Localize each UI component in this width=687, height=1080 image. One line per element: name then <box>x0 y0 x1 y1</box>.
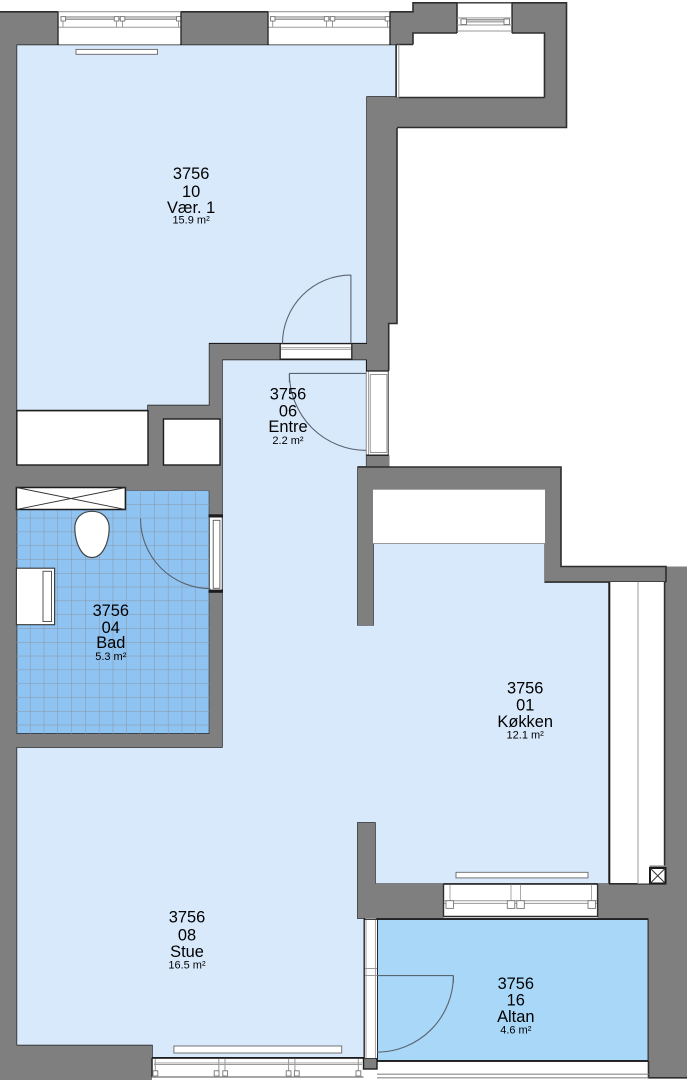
svg-text:01: 01 <box>516 697 534 715</box>
svg-text:5.3 m²: 5.3 m² <box>95 651 127 663</box>
svg-text:12.1 m²: 12.1 m² <box>507 730 545 742</box>
svg-text:3756: 3756 <box>507 679 543 697</box>
svg-text:08: 08 <box>178 927 196 945</box>
svg-text:3756: 3756 <box>173 165 209 183</box>
svg-text:15.9 m²: 15.9 m² <box>172 215 210 227</box>
svg-text:16: 16 <box>507 992 525 1010</box>
svg-text:Køkken: Køkken <box>497 713 553 731</box>
svg-text:Altan: Altan <box>497 1008 534 1026</box>
svg-text:3756: 3756 <box>270 386 306 404</box>
svg-text:Entre: Entre <box>268 418 307 436</box>
svg-text:3756: 3756 <box>498 975 534 993</box>
svg-text:2.2 m²: 2.2 m² <box>272 435 304 447</box>
svg-text:Bad: Bad <box>96 634 125 652</box>
svg-text:4.6 m²: 4.6 m² <box>500 1025 532 1037</box>
svg-text:3756: 3756 <box>169 909 205 927</box>
svg-text:16.5 m²: 16.5 m² <box>168 960 206 972</box>
svg-text:Stue: Stue <box>170 943 204 961</box>
svg-text:3756: 3756 <box>93 602 129 620</box>
